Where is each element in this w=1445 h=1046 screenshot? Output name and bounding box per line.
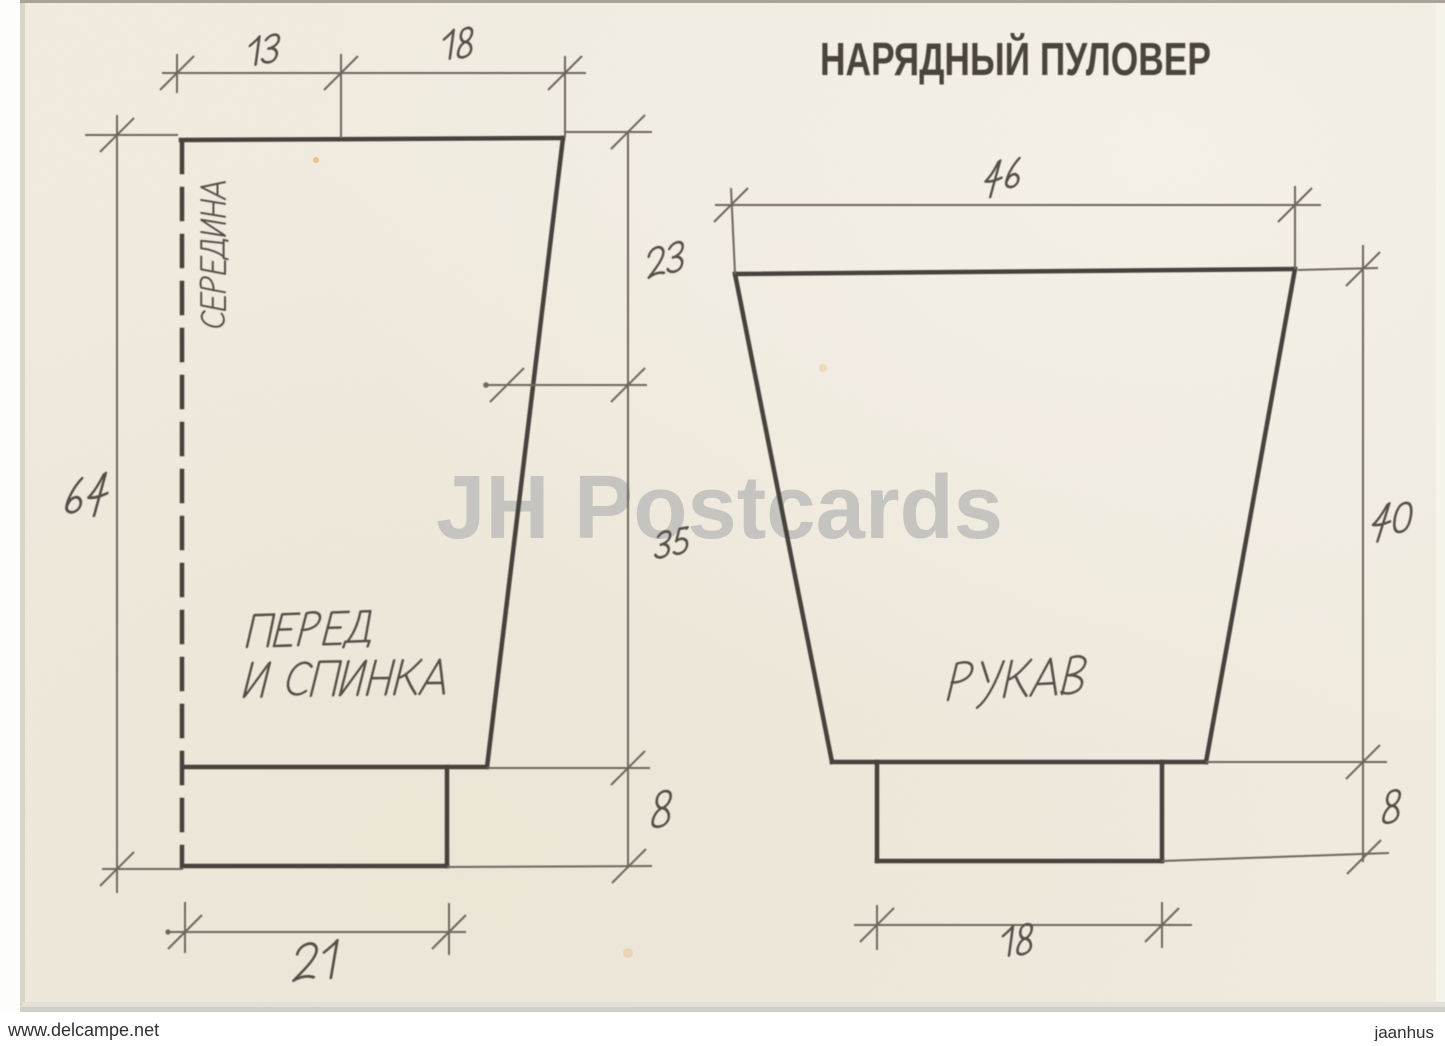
svg-text:jaanhus: jaanhus [1373, 1023, 1434, 1041]
svg-text:НАРЯДНЫЙ ПУЛОВЕР: НАРЯДНЫЙ ПУЛОВЕР [820, 33, 1211, 85]
svg-text:www.delcampe.net: www.delcampe.net [7, 1020, 159, 1040]
